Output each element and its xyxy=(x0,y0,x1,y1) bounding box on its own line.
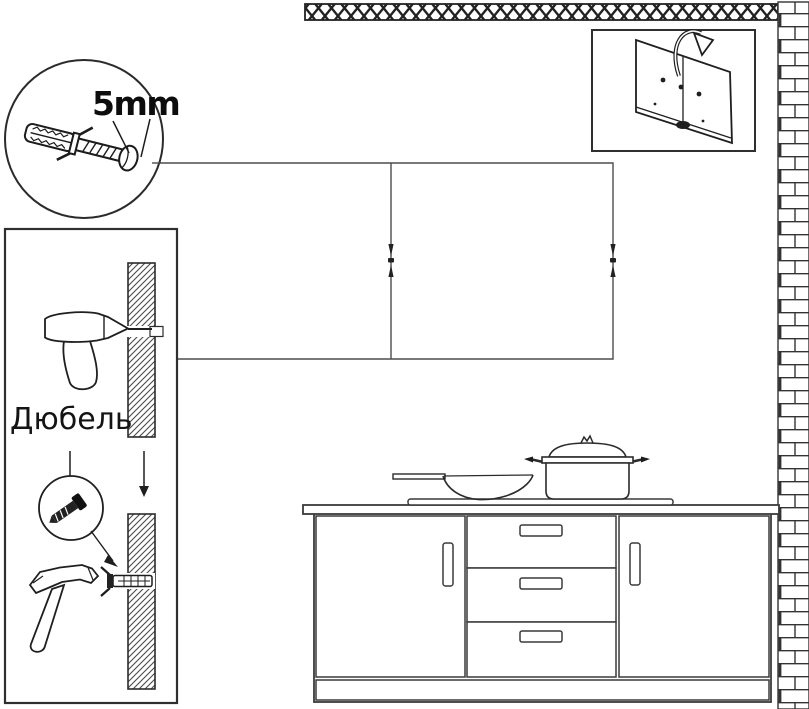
drill-size-label: 5mm xyxy=(92,84,179,123)
sidebar-instruction-panel xyxy=(5,229,177,703)
countertop xyxy=(303,505,779,514)
brick-wall-strip xyxy=(778,2,809,709)
drawer-1 xyxy=(467,516,616,568)
kitchen-hood-installation-diagram: 5mm Дюбель xyxy=(0,0,809,709)
drawer-handle-3 xyxy=(520,631,562,642)
ceiling-hatch-strip xyxy=(305,4,778,20)
mounting-mark-center xyxy=(388,244,394,277)
cooktop xyxy=(408,499,673,505)
drawer-handle-1 xyxy=(520,525,562,536)
drawer-handle-2 xyxy=(520,578,562,589)
wok-pan-icon xyxy=(393,474,533,500)
wall-cabinet-outline xyxy=(150,163,616,359)
stock-pot-icon xyxy=(524,436,650,499)
cabinet-door-left xyxy=(316,516,465,677)
mounting-mark-right xyxy=(610,244,616,277)
hatched-wall-section-lower xyxy=(126,514,155,689)
inset-panel-box xyxy=(592,30,755,151)
door-handle-right xyxy=(630,543,640,585)
base-cabinet xyxy=(303,499,779,702)
drawer-2 xyxy=(467,568,616,622)
door-handle-left xyxy=(443,543,453,586)
plinth xyxy=(316,680,769,700)
dowel-label: Дюбель xyxy=(10,402,133,437)
cabinet-door-right xyxy=(619,516,769,677)
